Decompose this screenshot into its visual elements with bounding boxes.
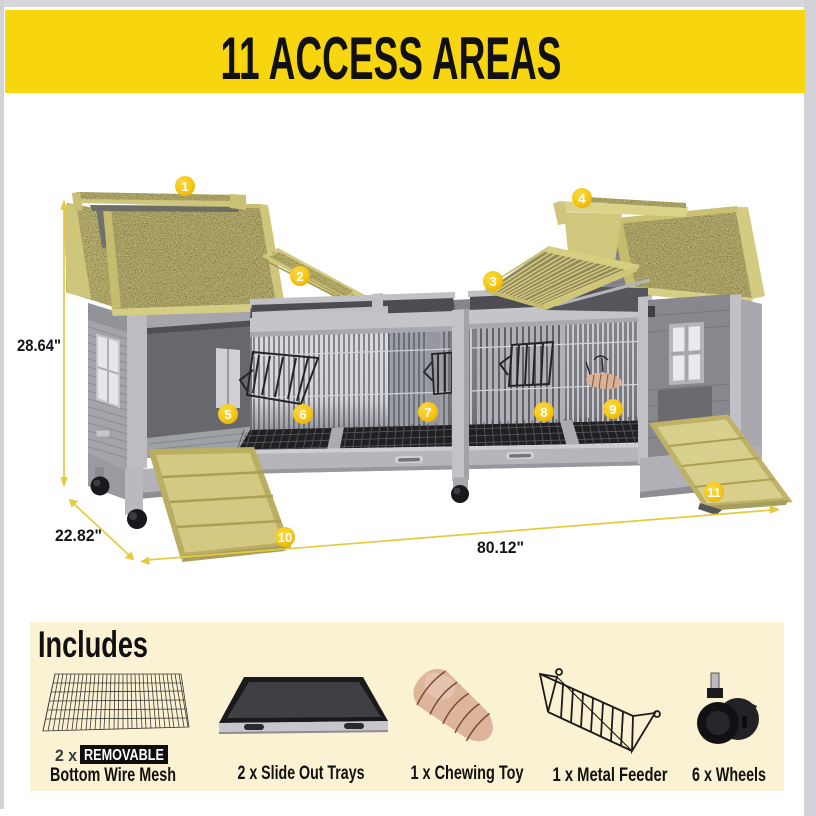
svg-text:3: 3 — [489, 274, 496, 289]
svg-text:28.64": 28.64" — [17, 336, 61, 355]
svg-text:1 x Chewing Toy: 1 x Chewing Toy — [411, 763, 524, 784]
svg-text:4: 4 — [578, 191, 586, 206]
svg-text:2: 2 — [296, 269, 303, 284]
svg-text:2 x Slide Out Trays: 2 x Slide Out Trays — [238, 763, 365, 784]
svg-text:22.82": 22.82" — [55, 526, 102, 545]
svg-text:8: 8 — [540, 405, 547, 420]
svg-text:11 ACCESS AREAS: 11 ACCESS AREAS — [221, 25, 562, 92]
svg-text:9: 9 — [609, 402, 616, 417]
svg-text:7: 7 — [424, 405, 431, 420]
svg-text:80.12": 80.12" — [477, 538, 524, 557]
svg-text:11: 11 — [707, 485, 721, 500]
svg-text:1 x Metal Feeder: 1 x Metal Feeder — [553, 765, 668, 786]
svg-text:6: 6 — [299, 407, 306, 422]
svg-text:1: 1 — [181, 179, 188, 194]
svg-text:2 x: 2 x — [55, 746, 77, 765]
svg-text:6 x Wheels: 6 x Wheels — [692, 765, 766, 786]
svg-text:5: 5 — [224, 407, 231, 422]
svg-text:Bottom Wire Mesh: Bottom Wire Mesh — [50, 765, 176, 786]
svg-text:Includes: Includes — [38, 624, 148, 665]
svg-text:10: 10 — [278, 530, 292, 545]
svg-text:REMOVABLE: REMOVABLE — [84, 747, 164, 764]
